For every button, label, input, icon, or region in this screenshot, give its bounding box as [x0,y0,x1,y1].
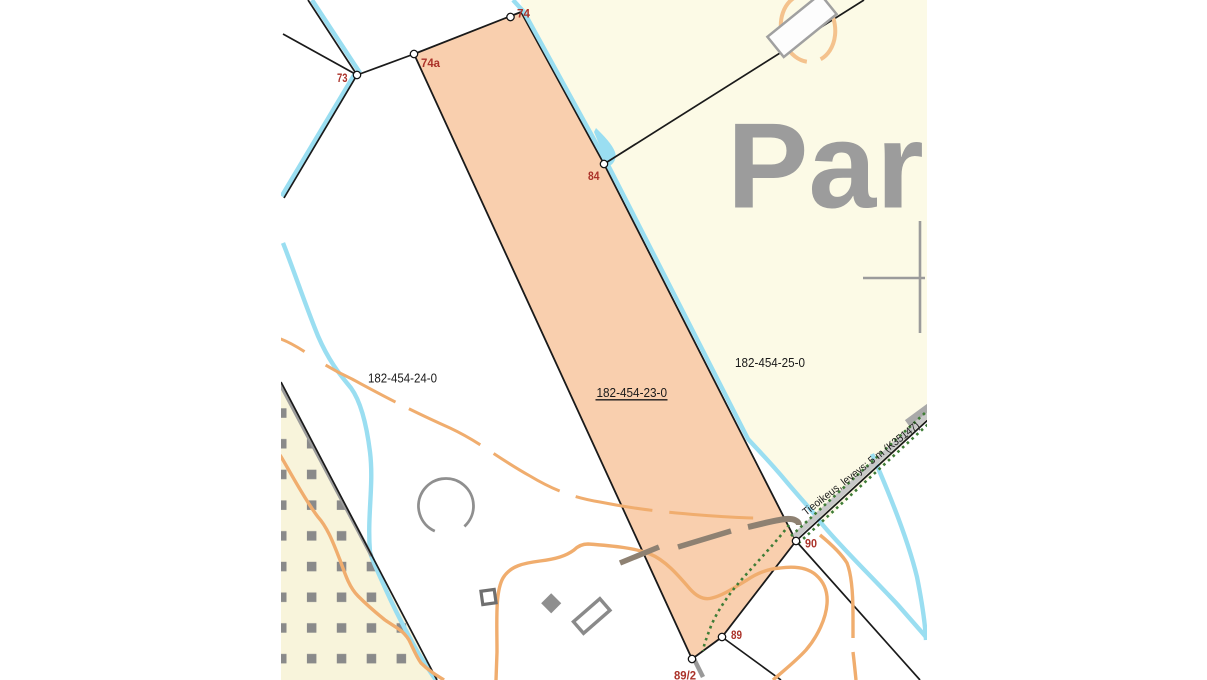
svg-text:73: 73 [337,71,348,85]
svg-text:182-454-25-0: 182-454-25-0 [735,355,805,370]
svg-text:89/2: 89/2 [674,669,696,680]
svg-text:74: 74 [517,7,530,21]
svg-text:89: 89 [731,628,742,642]
svg-text:182-454-24-0: 182-454-24-0 [368,371,437,386]
svg-text:84: 84 [588,169,600,183]
svg-text:Par: Par [727,98,924,234]
svg-text:90: 90 [805,537,817,551]
svg-text:74a: 74a [421,56,440,70]
svg-text:182-454-23-0: 182-454-23-0 [597,385,668,400]
